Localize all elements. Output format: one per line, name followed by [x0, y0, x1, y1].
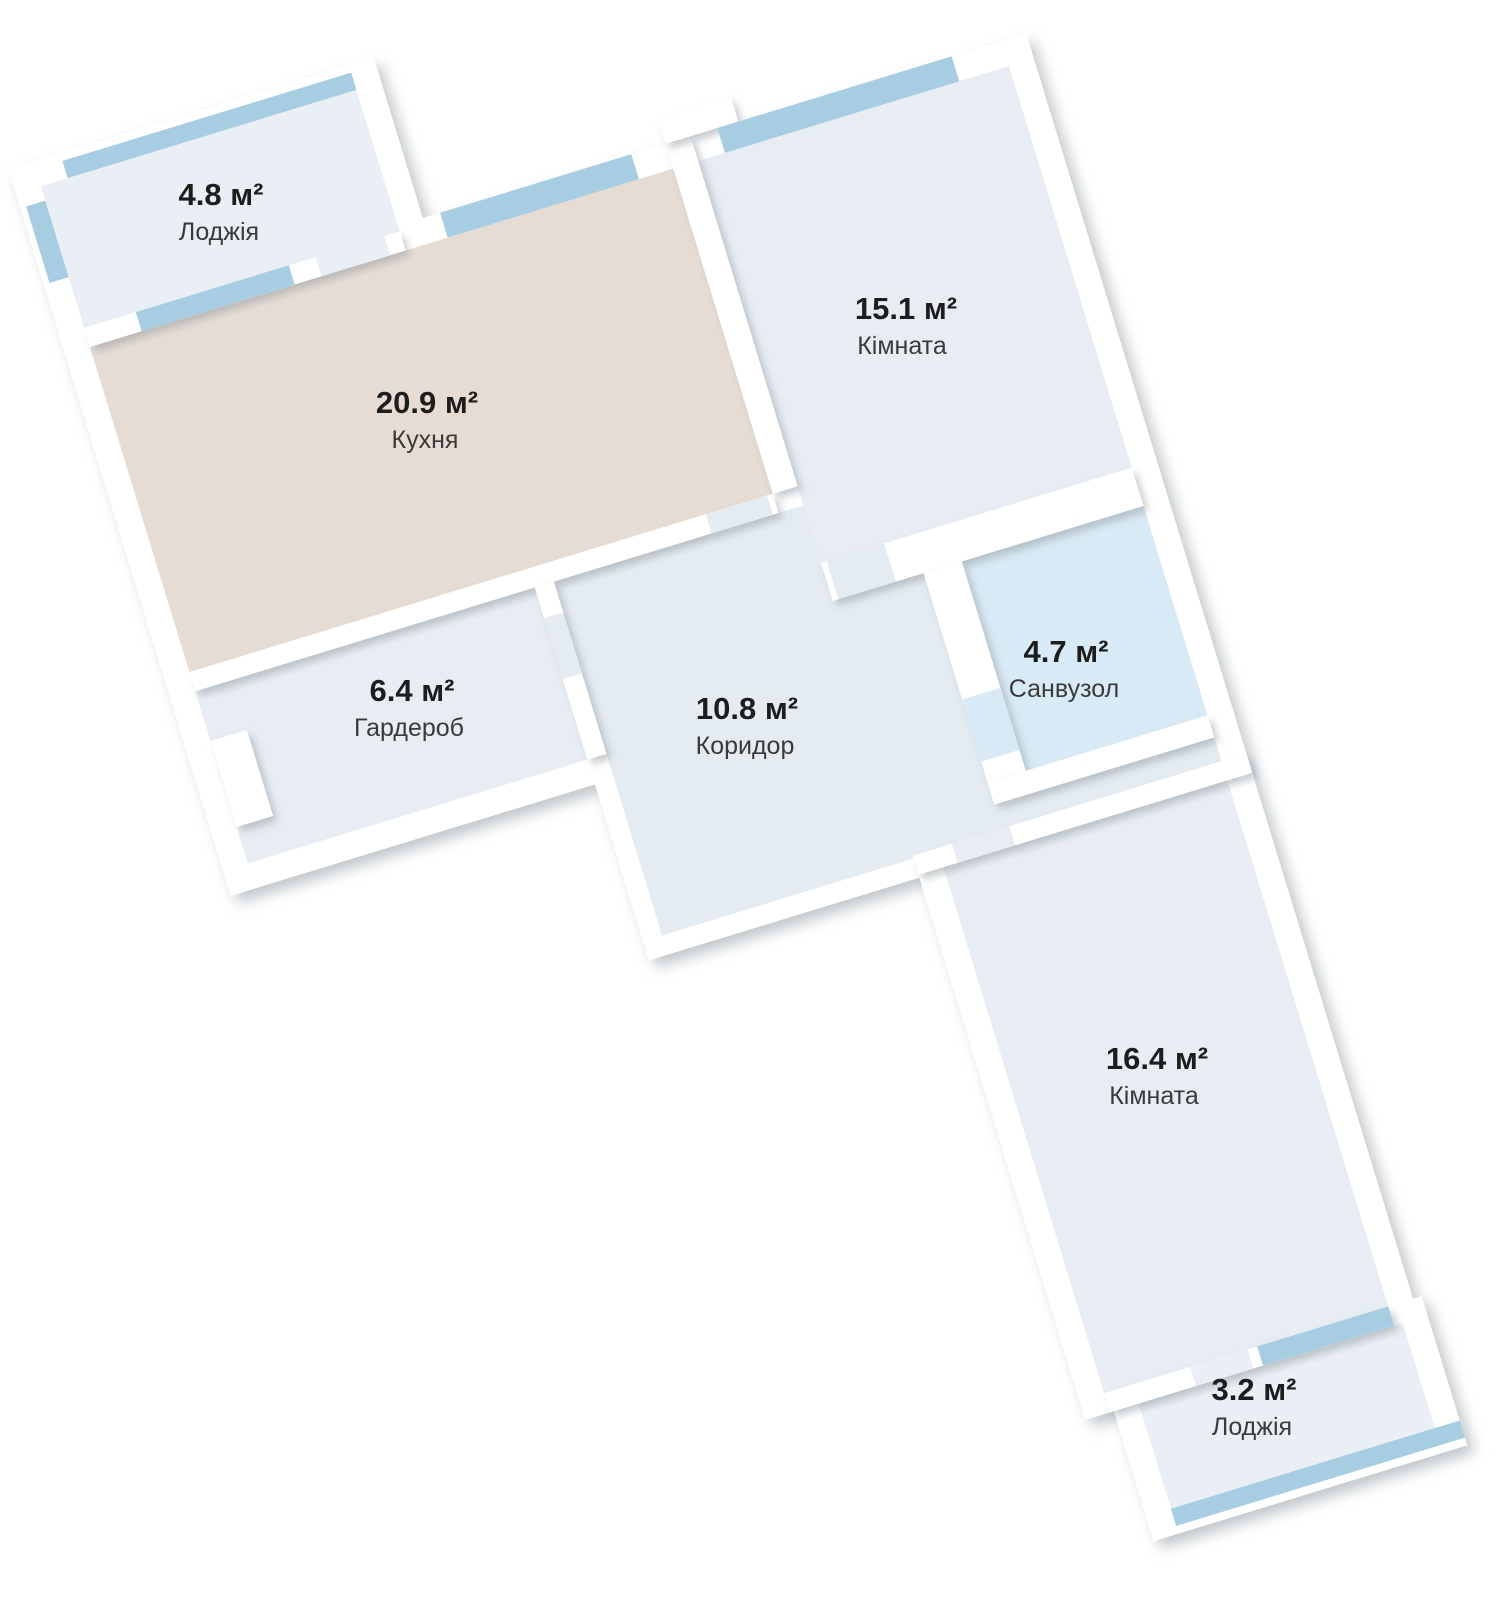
room-area: 3.2 м² [1212, 1372, 1297, 1407]
room-label-corridor: 10.8 м² Коридор [696, 691, 798, 760]
room-area: 20.9 м² [376, 385, 478, 420]
room-area: 15.1 м² [855, 291, 957, 326]
room-name: Санвузол [1009, 675, 1119, 703]
room-area: 16.4 м² [1106, 1041, 1208, 1076]
room-label-loggia-top: 4.8 м² Лоджія [179, 177, 264, 246]
room-area: 10.8 м² [696, 691, 798, 726]
floor-plan: 4.8 м² Лоджія 20.9 м² Кухня 15.1 м² Кімн… [0, 0, 1510, 1600]
room-name: Кімната [857, 332, 947, 360]
room-label-room-top: 15.1 м² Кімната [855, 291, 957, 360]
room-label-loggia-bottom: 3.2 м² Лоджія [1212, 1372, 1297, 1441]
room-area: 4.7 м² [1024, 634, 1109, 669]
room-label-wardrobe: 6.4 м² Гардероб [354, 673, 464, 742]
room-area: 4.8 м² [179, 177, 264, 212]
floor-plan-canvas: 4.8 м² Лоджія 20.9 м² Кухня 15.1 м² Кімн… [0, 0, 1510, 1600]
room-name: Гардероб [354, 714, 464, 742]
room-area: 6.4 м² [370, 673, 455, 708]
room-name: Коридор [696, 732, 795, 760]
room-name: Лоджія [179, 218, 259, 246]
room-name: Кухня [392, 426, 459, 454]
room-name: Лоджія [1212, 1413, 1292, 1441]
room-label-bathroom: 4.7 м² Санвузол [1009, 634, 1119, 703]
room-name: Кімната [1109, 1082, 1199, 1110]
room-label-room-bottom: 16.4 м² Кімната [1106, 1041, 1208, 1110]
